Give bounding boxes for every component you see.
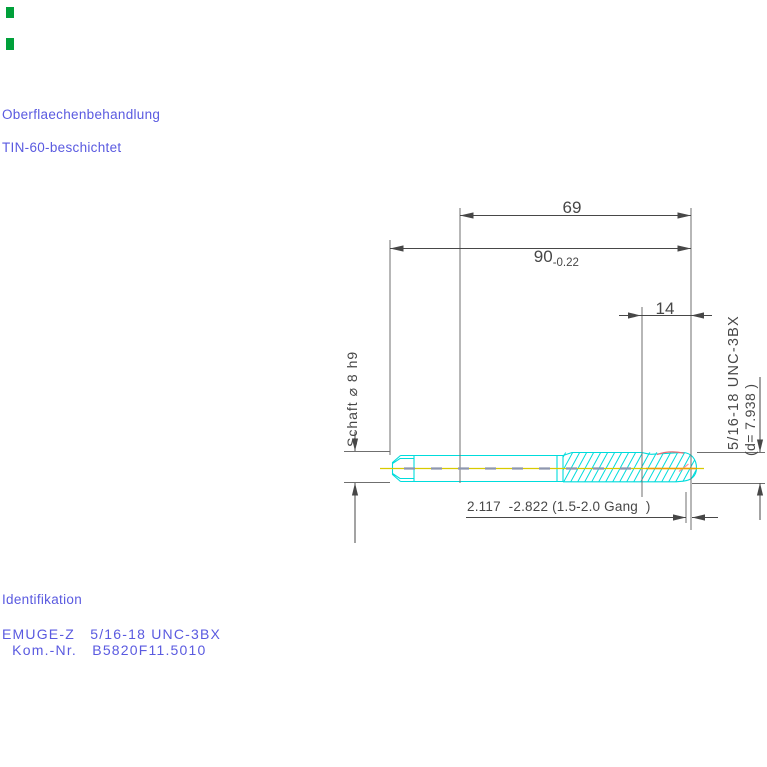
identification-product-line: EMUGE-Z 5/16-18 UNC-3BX (2, 626, 221, 642)
tool-outline (393, 453, 697, 482)
chamfer-length-label: 2.117 -2.822 (1.5-2.0 Gang ) (467, 499, 651, 514)
dim-69-label: 69 (555, 198, 589, 218)
dim-90-tolerance: -0.22 (553, 257, 579, 269)
shank-diameter-label: Schaft ⌀ 8 h9 (344, 351, 360, 447)
dim-90-label: 90-0.22 (516, 229, 579, 287)
dim-90-value: 90 (534, 247, 553, 266)
technical-drawing-page: Oberflaechenbehandlung TIN-60-beschichte… (0, 0, 767, 767)
thread-diameter-label: (d= 7.938 ) (742, 384, 758, 457)
dim-14-label: 14 (650, 299, 680, 319)
thread-spec-label: 5/16-18 UNC-3BX (726, 315, 742, 450)
identification-order-line: Kom.-Nr. B5820F11.5010 (2, 642, 206, 658)
identification-title: Identifikation (2, 592, 82, 607)
